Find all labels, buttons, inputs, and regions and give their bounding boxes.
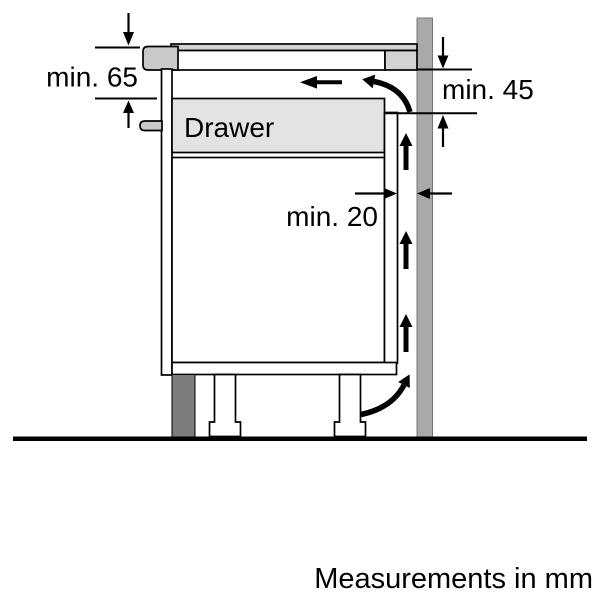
cabinet-back-panel: [385, 113, 398, 364]
min-65-down-arrow-icon: [123, 32, 134, 46]
airflow-left-arrow-icon: [300, 76, 342, 89]
min-65-label: min. 65: [46, 62, 138, 93]
cabinet-leg-front: [210, 375, 241, 437]
min-20-label: min. 20: [286, 201, 378, 232]
floor-line: [13, 437, 587, 442]
cabinet-leg-rear: [335, 375, 366, 437]
cabinet-front-panel: [162, 69, 173, 375]
min-65-up-arrow-icon: [123, 101, 134, 114]
min-45-up-arrow-icon: [438, 115, 449, 129]
hob-glass-top: [171, 44, 417, 51]
countertop-section: [385, 51, 417, 71]
min-45-label: min. 45: [442, 74, 534, 105]
min-65-dimension: min. 65: [46, 13, 157, 128]
cabinet-compartment: [172, 158, 385, 363]
diagram-canvas: Drawer min. 65 min. 45 min. 20: [0, 0, 600, 600]
hob-body: [172, 51, 385, 71]
airflow-up-arrow-2: [400, 231, 413, 269]
drawer-handle: [140, 121, 162, 131]
plinth-panel: [172, 375, 195, 438]
drawer-label: Drawer: [184, 112, 274, 143]
wall-section: [417, 18, 433, 437]
airflow-bottom-curve: [361, 385, 404, 415]
hob-front-trim: [143, 47, 178, 71]
airflow-top-curve-arrowhead-icon: [362, 75, 375, 89]
cabinet-bottom-panel: [172, 363, 397, 375]
footer-note: Measurements in mm: [314, 563, 593, 595]
min-45-down-arrow-icon: [438, 56, 449, 69]
airflow-up-arrow-1: [400, 133, 413, 170]
airflow-up-arrow-3: [400, 314, 413, 352]
hob-installation-diagram: Drawer min. 65 min. 45 min. 20: [0, 0, 600, 600]
